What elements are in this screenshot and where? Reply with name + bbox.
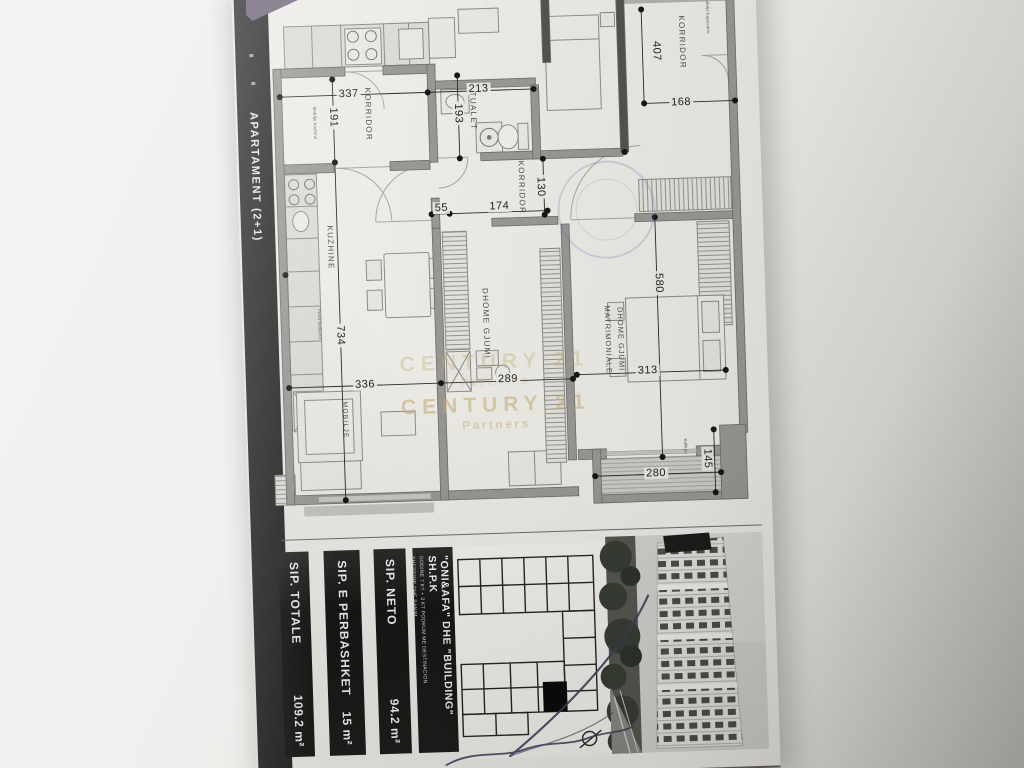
- dim-55: 55: [433, 202, 451, 215]
- dim-145: 145: [701, 446, 714, 470]
- room-label-korridor-1: KORRIDOR: [363, 87, 374, 141]
- sip-totale-label: SIP. TOTALE: [287, 562, 304, 645]
- strip-speck: [251, 82, 255, 85]
- label-layer: CENTURY 21 Partners CENTURY 21 Partners …: [231, 0, 780, 768]
- dim-313: 313: [636, 364, 660, 377]
- sip-perbashket-value: 15 m²: [340, 711, 355, 745]
- matrimoniale-line1: DHOME GJUMI: [615, 307, 626, 372]
- dim-130: 130: [534, 175, 547, 199]
- side-strip-label: APARTAMENT (2+1): [247, 112, 263, 242]
- dim-734: 734: [334, 323, 347, 347]
- titleblock-bar-sip-totale: SIP. TOTALE 109.2 m²: [278, 551, 315, 757]
- note-kitchen-furniture: Mobilje kuzhine: [312, 107, 317, 140]
- strip-speck: [249, 54, 253, 57]
- dim-191: 191: [327, 105, 340, 129]
- dim-174: 174: [487, 200, 511, 213]
- sip-totale-value: 109.2 m²: [291, 695, 307, 747]
- century21-watermark: CENTURY 21 Partners: [401, 390, 592, 434]
- century21-watermark: CENTURY 21 Partners: [399, 347, 590, 391]
- note-corridor-furniture: Mobilje kapuciere: [705, 0, 711, 34]
- titleblock-bar-sip-perbashket: SIP. E PERBASHKET 15 m²: [323, 550, 366, 756]
- room-label-dhome-gjumi: DHOME GJUMI: [481, 288, 492, 359]
- note-balcony: Ballkon: [683, 438, 688, 454]
- dim-289: 289: [496, 373, 520, 386]
- room-label-kuzhine: KUZHINE: [325, 225, 335, 269]
- room-label-korridor-3: KORRIDOR: [677, 15, 688, 69]
- dim-407: 407: [650, 39, 663, 63]
- sip-neto-value: 94.2 m²: [387, 699, 402, 744]
- note-balcony-door: Porta ballkonit: [316, 309, 321, 339]
- dim-280: 280: [644, 467, 668, 480]
- sip-perbashket-label: SIP. E PERBASHKET: [335, 560, 353, 696]
- room-label-dhome-matrimoniale: DHOME GJUMIMATRIMONIALE: [600, 305, 628, 374]
- matrimoniale-line2: MATRIMONIALE: [603, 305, 614, 374]
- sip-neto-label: SIP. NETO: [383, 559, 399, 626]
- room-label-tualet: TUALET: [468, 92, 478, 131]
- round-stamp-inner: [575, 178, 639, 242]
- dim-168: 168: [669, 96, 693, 109]
- titleblock-bar-sip-neto: SIP. NETO 94.2 m²: [373, 548, 412, 754]
- titleblock-bar-company: "ONI&AFA" DHE "BUILDING" SH.P.K GODINE 7…: [412, 547, 459, 753]
- photographed-floor-plan-scene: { "document": { "strip": { "label": "APA…: [0, 0, 1024, 768]
- room-label-mobilje: MOBILJE: [341, 402, 349, 439]
- company-name: "ONI&AFA" DHE "BUILDING" SH.P.K: [426, 555, 456, 745]
- dim-193: 193: [452, 101, 465, 125]
- room-label-korridor-2: KORRIDOR: [516, 161, 527, 215]
- round-stamp: [556, 159, 657, 260]
- dim-336: 336: [353, 378, 377, 391]
- dim-337: 337: [337, 88, 361, 101]
- dim-580: 580: [653, 271, 666, 295]
- floor-plan-sheet: CENTURY 21 Partners CENTURY 21 Partners …: [231, 0, 780, 768]
